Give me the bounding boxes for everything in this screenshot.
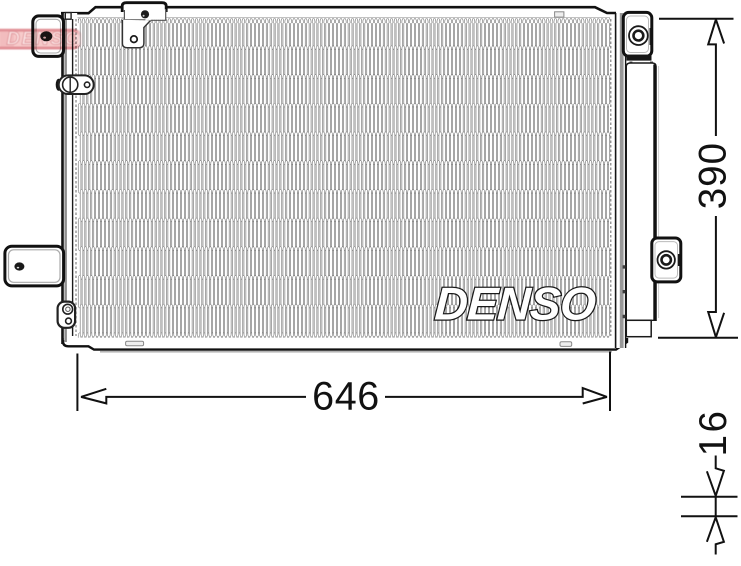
svg-text:646: 646: [312, 374, 380, 418]
svg-text:390: 390: [692, 142, 735, 209]
svg-text:DENSO: DENSO: [433, 278, 597, 330]
svg-text:DENSO: DENSO: [7, 27, 81, 48]
svg-text:16: 16: [692, 409, 735, 457]
